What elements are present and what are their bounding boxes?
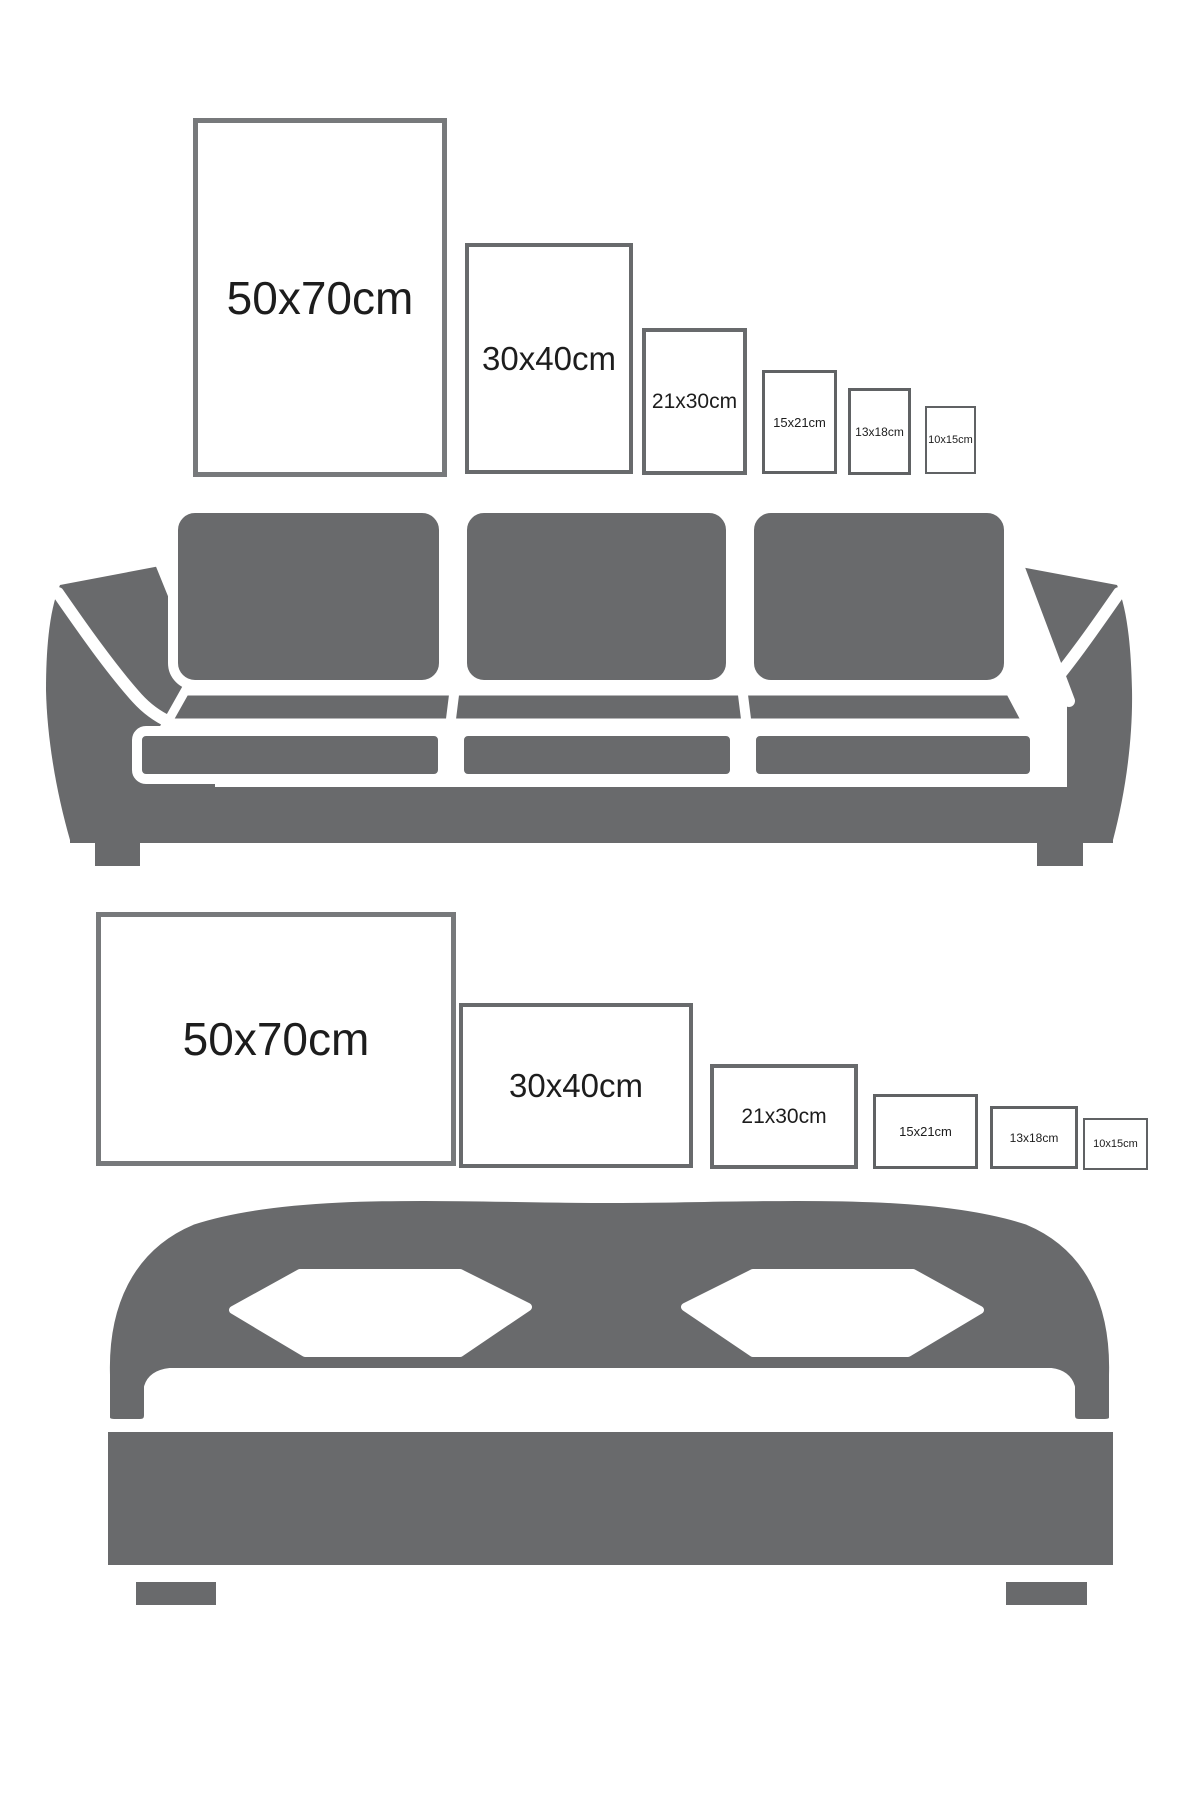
sofa-base xyxy=(70,787,1113,843)
size-frame-landscape-50x70: 50x70cm xyxy=(96,912,456,1166)
size-frame-landscape-13x18: 13x18cm xyxy=(990,1106,1078,1169)
size-frame-landscape-30x40: 30x40cm xyxy=(459,1003,693,1168)
size-frame-portrait-30x40: 30x40cm xyxy=(465,243,633,474)
bed-icon xyxy=(100,1195,1180,1610)
size-label: 10x15cm xyxy=(928,435,973,446)
size-label: 15x21cm xyxy=(773,416,826,429)
size-label: 13x18cm xyxy=(1010,1132,1059,1144)
poster-size-guide: 50x70cm 30x40cm 21x30cm 15x21cm 13x18cm … xyxy=(0,0,1200,1800)
size-label: 10x15cm xyxy=(1093,1139,1138,1150)
size-label: 50x70cm xyxy=(183,1016,370,1062)
size-frame-landscape-10x15: 10x15cm xyxy=(1083,1118,1148,1170)
size-frame-portrait-15x21: 15x21cm xyxy=(762,370,837,474)
size-label: 50x70cm xyxy=(227,275,414,321)
size-label: 21x30cm xyxy=(652,391,737,412)
size-frame-portrait-21x30: 21x30cm xyxy=(642,328,747,475)
size-label: 13x18cm xyxy=(855,426,904,438)
size-label: 30x40cm xyxy=(509,1069,643,1102)
size-frame-portrait-10x15: 10x15cm xyxy=(925,406,976,474)
size-label: 30x40cm xyxy=(482,342,616,375)
bed-headboard xyxy=(106,1197,1113,1423)
size-frame-portrait-13x18: 13x18cm xyxy=(848,388,911,475)
bed-left-foot xyxy=(136,1582,216,1605)
sofa-seat-cushions xyxy=(137,731,1035,779)
sofa-left-foot xyxy=(95,843,140,866)
sofa-icon xyxy=(45,495,1145,870)
size-frame-portrait-50x70: 50x70cm xyxy=(193,118,447,477)
sofa-right-foot xyxy=(1037,843,1083,866)
sofa-back-cushions xyxy=(173,508,1009,685)
size-frame-landscape-21x30: 21x30cm xyxy=(710,1064,858,1169)
size-label: 15x21cm xyxy=(899,1125,952,1138)
size-frame-landscape-15x21: 15x21cm xyxy=(873,1094,978,1169)
bed-right-foot xyxy=(1006,1582,1087,1605)
bed-base xyxy=(108,1432,1113,1565)
sofa-seat-deck xyxy=(167,691,1027,723)
size-label: 21x30cm xyxy=(741,1106,826,1127)
